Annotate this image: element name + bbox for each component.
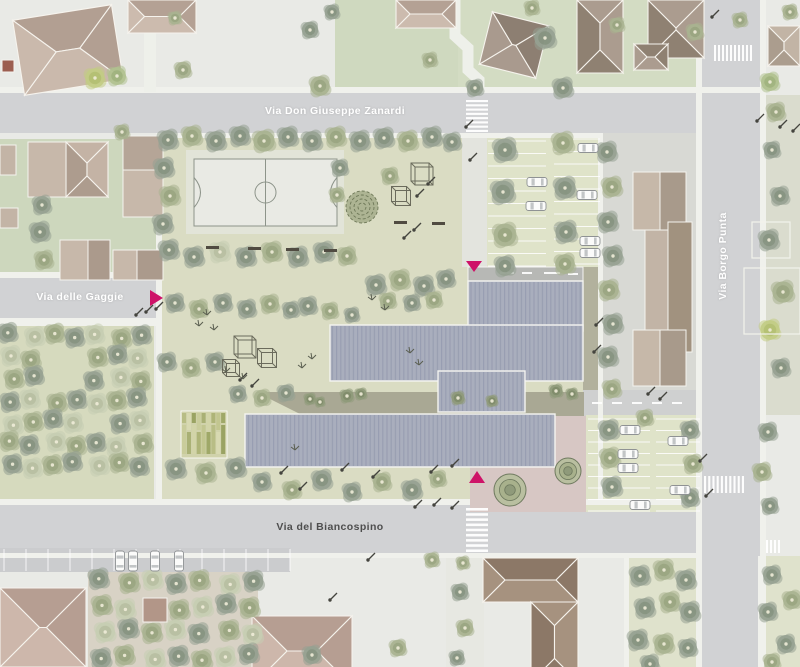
tree-center — [236, 392, 239, 395]
allotment-plot — [192, 425, 196, 454]
tree — [191, 649, 214, 667]
tree-center — [396, 646, 399, 649]
tree-center — [238, 134, 241, 137]
tree — [782, 590, 800, 611]
lamp-head — [755, 119, 758, 122]
tree-center — [31, 467, 34, 470]
tree-center — [229, 583, 232, 586]
tree — [131, 324, 153, 346]
tree-center — [606, 355, 609, 358]
tree-center — [118, 461, 121, 464]
tree — [373, 127, 396, 150]
car-rear-window — [594, 250, 597, 257]
crosswalk-stripe — [738, 476, 740, 493]
tree — [126, 386, 148, 408]
tree — [84, 67, 107, 90]
lot-left-of-building — [446, 553, 484, 667]
tree-center — [790, 598, 793, 601]
tree — [229, 125, 252, 148]
tree-center — [234, 466, 237, 469]
crosswalk-stripe — [746, 45, 748, 61]
tree — [598, 279, 621, 302]
tree — [758, 422, 779, 443]
tree — [397, 130, 420, 153]
tree — [653, 559, 676, 582]
tree-center — [490, 399, 493, 402]
tree-center — [693, 30, 696, 33]
tree — [191, 596, 214, 619]
tree-center — [221, 301, 224, 304]
lamp-head — [791, 129, 794, 132]
tree-center — [760, 470, 763, 473]
hip-roof-building — [634, 44, 668, 70]
lamp-head — [415, 194, 418, 197]
parked-car — [580, 237, 600, 246]
crosswalk-stripe — [466, 544, 488, 547]
shed-red — [2, 60, 14, 72]
tree — [320, 301, 339, 320]
tree-center — [766, 430, 769, 433]
crosswalk-stripe — [466, 539, 488, 542]
tree-center — [73, 336, 76, 339]
tree-center — [165, 360, 168, 363]
tree-center — [607, 428, 610, 431]
tree-center — [268, 302, 271, 305]
tree-center — [166, 138, 169, 141]
tree — [83, 370, 105, 392]
tree-center — [638, 574, 641, 577]
tree-center — [563, 186, 566, 189]
car-body — [151, 551, 160, 571]
tree-center — [244, 255, 247, 258]
tree — [337, 246, 358, 267]
tree-center — [200, 659, 203, 662]
crosswalk-stripe — [738, 45, 740, 61]
allotment-plot — [197, 432, 201, 454]
tree — [167, 10, 182, 25]
tree — [260, 294, 281, 315]
lamp-head — [594, 323, 597, 326]
tree-center — [51, 463, 54, 466]
bench — [324, 249, 337, 252]
tree-center — [6, 331, 9, 334]
curb — [696, 0, 702, 667]
car-rear-window — [594, 238, 597, 245]
lamp-head — [646, 392, 649, 395]
tree — [218, 619, 241, 642]
tree-center — [151, 578, 154, 581]
hip-roof-building — [577, 0, 623, 73]
tree — [565, 387, 578, 400]
tree — [238, 596, 261, 619]
tree-center — [190, 134, 193, 137]
crosswalk-stripe — [466, 130, 488, 132]
bench — [286, 248, 299, 251]
crosswalk-stripe — [708, 476, 710, 493]
tree — [309, 75, 332, 98]
curb — [0, 553, 702, 558]
tree-center — [563, 262, 566, 265]
tree — [107, 343, 129, 365]
tree — [106, 390, 128, 412]
tree — [598, 419, 621, 442]
hip-roof-building — [128, 0, 196, 33]
tree — [634, 597, 657, 620]
tree-center — [290, 488, 293, 491]
tree-center — [162, 166, 165, 169]
tree-center — [40, 203, 43, 206]
crosswalk-stripe — [721, 476, 723, 493]
tree — [421, 126, 444, 149]
road-biancospino — [0, 505, 702, 553]
car-windshield — [585, 250, 588, 257]
tree-center — [127, 627, 130, 630]
tree — [237, 299, 258, 320]
tree — [114, 598, 137, 621]
tree-center — [224, 655, 227, 658]
tree — [84, 323, 106, 345]
crosswalk-stripe — [766, 540, 768, 553]
crosswalk-stripe — [729, 476, 731, 493]
tree-center — [788, 10, 791, 13]
flat-roof-building — [137, 250, 163, 280]
tree — [113, 123, 130, 140]
car-body — [129, 551, 138, 571]
tree-center — [138, 465, 141, 468]
tree-center — [123, 654, 126, 657]
tree — [602, 379, 623, 400]
tree-center — [308, 28, 311, 31]
crosswalk-stripe — [466, 109, 488, 111]
tree-center — [136, 357, 139, 360]
tree-center — [610, 185, 613, 188]
lamp-head — [426, 182, 429, 185]
flat-roof-building — [88, 240, 110, 280]
lamp-head — [154, 307, 157, 310]
car-rear-window — [684, 487, 687, 494]
tree — [144, 648, 167, 667]
tree — [64, 327, 86, 349]
tree-center — [350, 490, 353, 493]
tree-center — [150, 631, 153, 634]
roof-dash — [652, 402, 662, 404]
tree-center — [204, 471, 207, 474]
tree-center — [139, 380, 142, 383]
tree — [597, 211, 620, 234]
tree-center — [119, 376, 122, 379]
tree — [485, 394, 498, 407]
tree — [380, 166, 399, 185]
tree-center — [570, 392, 573, 395]
parked-car — [620, 426, 640, 435]
road-gaggie — [0, 278, 162, 318]
car-rear-window — [592, 145, 595, 152]
tree — [450, 390, 465, 405]
tree-center — [422, 284, 425, 287]
tree-center — [28, 443, 31, 446]
tree — [402, 293, 421, 312]
crosswalk-stripe — [774, 540, 776, 553]
tree — [152, 213, 175, 236]
tree-center — [104, 630, 107, 633]
tree-center — [189, 366, 192, 369]
tree — [242, 570, 265, 593]
tree — [601, 176, 624, 199]
allotment-plot — [216, 432, 220, 454]
tree — [490, 179, 517, 206]
tree — [0, 391, 21, 413]
tree-center — [181, 68, 184, 71]
tree-center — [173, 16, 176, 19]
tree-center — [93, 76, 96, 79]
car-rear-window — [541, 179, 544, 186]
tree — [19, 388, 41, 410]
tree — [0, 322, 19, 344]
tree — [165, 572, 188, 595]
tree-center — [318, 84, 321, 87]
tree — [311, 469, 334, 492]
tree-center — [252, 580, 255, 583]
flat-roof-building — [633, 172, 660, 230]
tree — [128, 456, 150, 478]
lamp-head — [432, 503, 435, 506]
tree — [157, 352, 178, 373]
allotment-plot — [216, 413, 220, 430]
allotment-plot — [221, 413, 225, 423]
tree-center — [245, 307, 248, 310]
lamp-head — [412, 228, 415, 231]
tree — [758, 229, 781, 252]
tree-center — [615, 23, 618, 26]
lamp-head — [371, 475, 374, 478]
tree — [601, 476, 624, 499]
tree-center — [410, 488, 413, 491]
tree-center — [168, 194, 171, 197]
tree — [62, 412, 84, 434]
tree — [167, 645, 190, 667]
tree — [328, 186, 345, 203]
tree-center — [358, 139, 361, 142]
tree-center — [688, 428, 691, 431]
tree — [165, 458, 188, 481]
tree-center — [350, 313, 353, 316]
lamp-head — [238, 378, 241, 381]
tree-center — [768, 328, 771, 331]
tree — [770, 186, 791, 207]
tree-center — [225, 602, 228, 605]
tree — [66, 389, 88, 411]
car-rear-window — [644, 502, 647, 509]
car-windshield — [117, 556, 124, 559]
tree-center — [611, 322, 614, 325]
tree-center — [662, 568, 665, 571]
crosswalk-stripe — [466, 524, 488, 527]
flat-roof-building — [28, 142, 66, 197]
tree — [683, 454, 704, 475]
tree — [22, 411, 44, 433]
tree — [325, 126, 348, 149]
tree — [34, 250, 55, 271]
tree-center — [320, 478, 323, 481]
tree — [423, 551, 440, 568]
tree — [188, 569, 211, 592]
school-building-ribs — [246, 415, 554, 466]
car-body — [630, 501, 650, 510]
tree-center — [398, 278, 401, 281]
tree — [339, 388, 354, 403]
tree-center — [115, 399, 118, 402]
car-rear-window — [591, 192, 594, 199]
car-windshield — [130, 556, 137, 559]
crosswalk-stripe — [466, 529, 488, 532]
tree-center — [42, 258, 45, 261]
allotment-plot — [202, 413, 206, 423]
tree — [22, 457, 44, 479]
tree-center — [456, 396, 459, 399]
car-body — [618, 450, 638, 459]
tree — [771, 280, 796, 305]
tree-center — [13, 377, 16, 380]
crosswalk-stripe — [734, 45, 736, 61]
tree-center — [688, 496, 691, 499]
tree — [762, 565, 783, 586]
flat-roof-building — [0, 208, 18, 228]
crosswalk-stripe — [466, 100, 488, 102]
car-windshield — [532, 179, 535, 186]
tree-center — [330, 10, 333, 13]
tree — [388, 638, 407, 657]
car-rear-window — [634, 427, 637, 434]
tree-center — [458, 590, 461, 593]
parked-car — [526, 202, 546, 211]
tree — [298, 296, 319, 317]
path-ne — [462, 133, 487, 267]
lamp-head — [658, 397, 661, 400]
car-body — [618, 464, 638, 473]
car-rear-window — [632, 465, 635, 472]
tree-center — [648, 662, 651, 665]
tree — [301, 130, 324, 153]
tree-center — [32, 374, 35, 377]
tree-center — [410, 301, 413, 304]
parked-car — [577, 191, 597, 200]
tree — [252, 472, 273, 493]
car-body — [580, 249, 600, 258]
tree — [492, 222, 519, 249]
crosswalk-stripe — [725, 476, 727, 493]
tree — [685, 22, 704, 41]
parked-car — [668, 437, 688, 446]
car-body — [580, 237, 600, 246]
tree — [760, 72, 781, 93]
allotment-plot — [182, 413, 186, 423]
lamp-head — [778, 125, 781, 128]
tree — [153, 157, 176, 180]
car-body — [620, 426, 640, 435]
car-body — [526, 202, 546, 211]
crosswalk-stripe — [778, 540, 780, 553]
car-body — [578, 144, 598, 153]
lamp-head — [710, 15, 713, 18]
car-rear-window — [176, 565, 183, 568]
tree — [2, 453, 24, 475]
tree — [42, 408, 64, 430]
tree-center — [12, 424, 15, 427]
tree — [90, 647, 113, 667]
tree — [302, 645, 323, 666]
school-building-ribs — [469, 282, 582, 330]
tree-center — [29, 358, 32, 361]
car-rear-window — [632, 451, 635, 458]
tree-center — [284, 391, 287, 394]
car-rear-window — [130, 565, 137, 568]
tree-center — [92, 379, 95, 382]
allotment-plot — [206, 413, 210, 430]
flat-roof-building — [660, 330, 686, 386]
tree-center — [610, 485, 613, 488]
tree — [389, 269, 412, 292]
tree — [465, 78, 484, 97]
lamp-head — [704, 494, 707, 497]
tree-center — [662, 642, 665, 645]
allotment-plot — [197, 413, 201, 430]
lamp-head — [144, 310, 147, 313]
tree-center — [778, 194, 781, 197]
tree-center — [561, 86, 564, 89]
tree-center — [503, 264, 506, 267]
tree — [762, 652, 781, 667]
car-rear-window — [682, 438, 685, 445]
car-windshield — [152, 556, 159, 559]
tree-center — [197, 632, 200, 635]
flat-roof-building — [633, 330, 660, 386]
tree-center — [100, 657, 103, 660]
lamp-head — [698, 459, 701, 462]
tree — [494, 255, 517, 278]
tree — [608, 16, 625, 33]
tree — [675, 569, 698, 592]
tree-center — [52, 417, 55, 420]
tree-center — [770, 660, 773, 663]
tree-center — [93, 333, 96, 336]
spiral-tree — [346, 191, 378, 223]
tree-center — [310, 139, 313, 142]
tree — [61, 451, 83, 473]
tree — [108, 452, 130, 474]
lamp-head — [250, 384, 253, 387]
tree-center — [9, 400, 12, 403]
tree — [548, 383, 563, 398]
tree — [635, 408, 654, 427]
parked-car — [175, 551, 184, 571]
tree — [181, 125, 204, 148]
site-plan: Via Don Giuseppe Zanardi Via delle Gaggi… — [0, 0, 800, 667]
parked-car — [618, 450, 638, 459]
tree-center — [270, 250, 273, 253]
tree — [127, 347, 149, 369]
hip-roof-building — [768, 26, 800, 66]
tree — [314, 396, 325, 407]
tree — [107, 66, 128, 87]
lamp-head — [402, 236, 405, 239]
tree-center — [8, 439, 11, 442]
tree-center — [668, 600, 671, 603]
tree-center — [262, 139, 265, 142]
flat-roof-building — [0, 145, 16, 175]
tree-center — [38, 230, 41, 233]
tree-center — [161, 222, 164, 225]
tree-center — [406, 139, 409, 142]
